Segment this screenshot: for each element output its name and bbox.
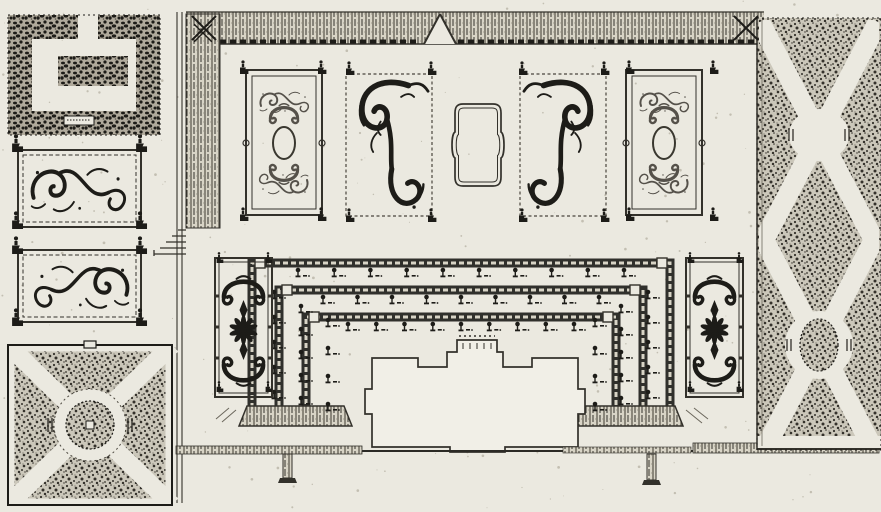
bastion-square bbox=[282, 285, 292, 295]
bastion-square bbox=[630, 285, 640, 295]
bastion-square bbox=[309, 312, 319, 322]
diagonal-bosquet bbox=[8, 341, 172, 505]
bastion-square bbox=[603, 312, 613, 322]
north-gate-post bbox=[84, 341, 96, 348]
bastion-square bbox=[657, 258, 667, 268]
oval-island bbox=[800, 319, 838, 371]
bastion-square bbox=[255, 258, 265, 268]
scanned-garden-plan bbox=[0, 0, 881, 512]
right-leg-foot bbox=[570, 406, 683, 426]
bosquet-strip-right bbox=[757, 18, 881, 458]
lens-opening bbox=[789, 109, 849, 161]
maze-center-block bbox=[58, 56, 128, 86]
terrace-walk-top bbox=[186, 12, 764, 44]
fountain-center bbox=[86, 421, 94, 429]
garden-plan-svg bbox=[0, 0, 881, 512]
